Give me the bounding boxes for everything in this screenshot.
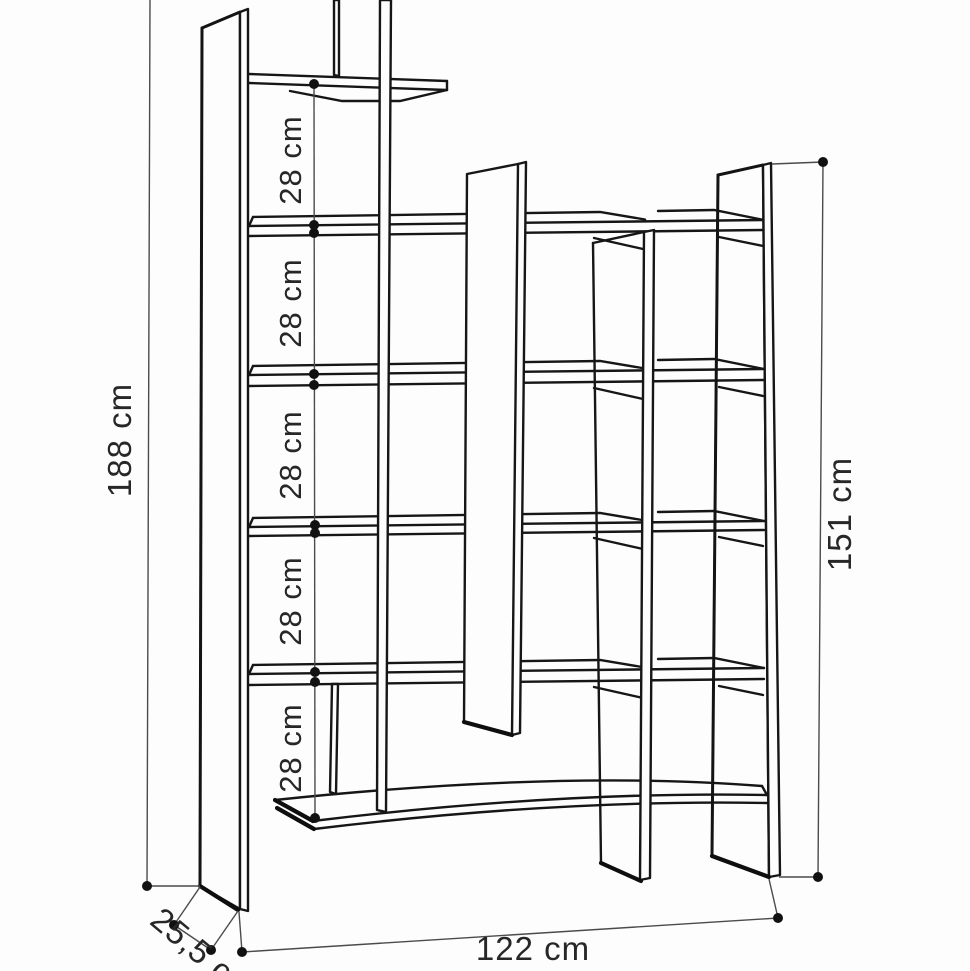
label-width: 122 cm [476,930,590,967]
label-gap-1: 28 cm [273,115,308,204]
left-side-panel [200,9,248,911]
shelf-bottom [275,780,768,829]
dimension-total-height [142,0,200,891]
label-gap-3: 28 cm [273,410,308,499]
dimension-shelf-gaps [309,79,320,823]
lower-left-divider [330,684,338,794]
label-inner-height: 151 cm [821,457,858,571]
right-divider [593,230,654,881]
middle-divider [464,162,526,735]
diagram-canvas: 188 cm 28 cm 28 cm 28 cm 28 cm 28 cm 151… [0,0,970,971]
label-gap-2: 28 cm [273,258,308,347]
tall-center-plank [377,0,391,812]
dimension-inner-height [772,157,828,882]
label-total-height: 188 cm [101,383,138,497]
top-stub-plank [334,0,339,76]
label-gap-4: 28 cm [273,556,308,645]
bookshelf-diagram: 188 cm 28 cm 28 cm 28 cm 28 cm 28 cm 151… [0,0,970,971]
shelf-top [249,74,447,101]
label-gap-5: 28 cm [273,703,308,792]
